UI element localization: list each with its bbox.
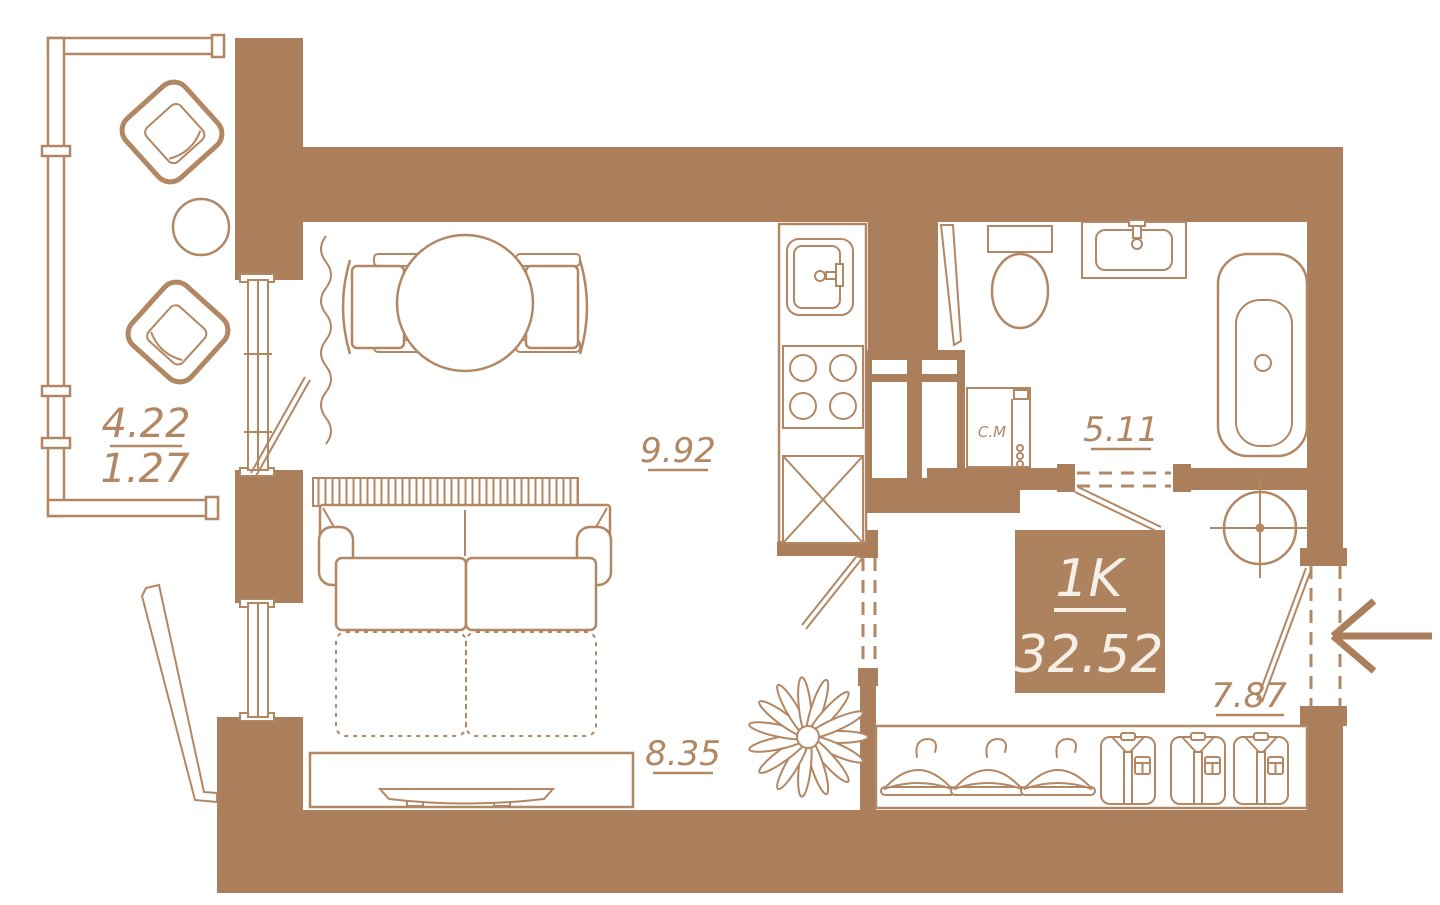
entrance-jamb-top xyxy=(1300,548,1347,566)
radiator-icon xyxy=(313,478,578,506)
room-hall-wall xyxy=(860,686,876,810)
counter-end-wall xyxy=(777,542,865,556)
cabinet-x-icon xyxy=(783,456,863,543)
hallway-area-label: 7.87 xyxy=(1211,676,1287,716)
kitchen-counter xyxy=(779,224,866,543)
chair-back xyxy=(580,260,587,354)
shirt-icon xyxy=(1101,733,1155,804)
dining-table-icon xyxy=(397,235,533,371)
bathroom-wall-left xyxy=(927,468,1059,490)
glazing-mullion xyxy=(212,35,224,57)
entrance-arrow-icon xyxy=(1333,601,1432,671)
washing-machine-label: С.М xyxy=(978,423,1006,441)
chair-back xyxy=(343,260,350,354)
shirt-icon xyxy=(1234,733,1288,804)
kitchen-sink-icon xyxy=(787,239,853,315)
room-door-jamb-bottom xyxy=(858,668,878,686)
balcony-reduced-area-label: 1.27 xyxy=(100,446,190,492)
balcony-wall-mid xyxy=(235,470,303,603)
kitchen-bathroom-wall xyxy=(868,222,938,350)
toilet-icon xyxy=(988,226,1052,328)
tv-icon xyxy=(380,789,553,804)
sofa-foldout xyxy=(336,632,466,736)
floor-plan: С.М xyxy=(0,0,1440,905)
top-wall xyxy=(300,147,1343,222)
vent-slot xyxy=(922,382,957,478)
bathroom-area-label: 5.11 xyxy=(1083,410,1159,450)
ceiling-light-icon xyxy=(1210,478,1310,578)
vent-slot xyxy=(872,360,907,374)
bathroom-wall-right xyxy=(1189,468,1307,490)
dining-set xyxy=(343,235,587,371)
balcony-wall-upper xyxy=(235,38,303,280)
balcony-furniture xyxy=(116,76,235,389)
sofa-icon xyxy=(319,505,611,736)
balcony-window xyxy=(240,274,310,476)
bathroom-sink-icon xyxy=(1082,220,1186,278)
stove-icon xyxy=(783,346,863,428)
tv-stand xyxy=(310,753,633,807)
glazing-mullion xyxy=(206,497,218,519)
unit-type-label: 1K xyxy=(1055,549,1126,609)
vent-slot xyxy=(872,382,907,478)
armchair-icon xyxy=(116,76,229,189)
unit-area-label: 32.52 xyxy=(1015,625,1164,685)
washing-machine-icon: С.М xyxy=(967,388,1030,467)
bottom-wall xyxy=(217,810,1343,893)
glazing-mullion xyxy=(42,386,70,396)
armchair-icon xyxy=(122,276,235,389)
balcony-area-label: 4.22 xyxy=(101,401,190,447)
window-sash-open xyxy=(142,585,217,802)
shirt-icon xyxy=(1171,733,1225,804)
unit-info-box: 1K 32.52 xyxy=(1015,530,1165,693)
glazing-mullion xyxy=(42,438,70,448)
living-room-area-label: 8.35 xyxy=(645,734,721,774)
glazing-mullion xyxy=(42,146,70,156)
door-leaf xyxy=(806,556,864,629)
floor-plan-page: С.М xyxy=(0,0,1440,905)
door-leaf xyxy=(1075,492,1158,532)
bathroom-door-jamb xyxy=(1173,464,1191,492)
wardrobe xyxy=(876,726,1307,808)
plant-icon xyxy=(748,677,868,798)
right-wall-lower xyxy=(1307,710,1343,893)
vent-slot xyxy=(922,360,957,374)
bathroom-partition-line xyxy=(941,225,961,345)
balcony-table-icon xyxy=(173,199,229,255)
bathroom-door xyxy=(1075,473,1171,532)
door-leaf xyxy=(1078,487,1161,527)
sofa-foldout xyxy=(466,632,596,736)
door-leaf xyxy=(802,552,860,625)
bathtub-icon xyxy=(1218,254,1307,456)
bathroom-door-jamb xyxy=(1057,464,1075,492)
room-door xyxy=(802,552,875,668)
right-wall-upper xyxy=(1307,147,1343,562)
kitchen-area-label: 9.92 xyxy=(640,431,716,471)
curtain-icon xyxy=(321,236,331,444)
